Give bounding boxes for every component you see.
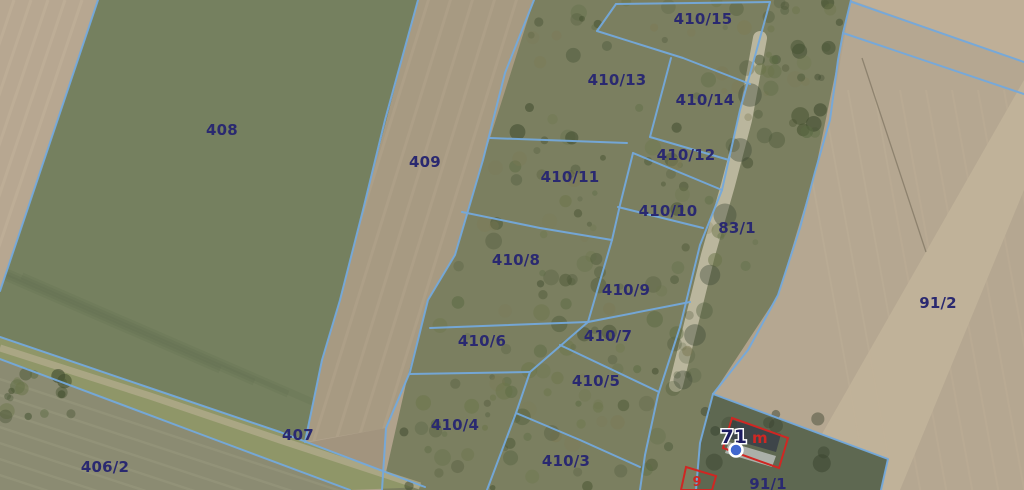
parcel-label-408: 408 bbox=[206, 121, 238, 139]
parcel-label-410-12: 410/12 bbox=[657, 146, 716, 164]
cadastral-map[interactable]: 408409410/15410/13410/14410/12410/11410/… bbox=[0, 0, 1024, 490]
parcel-label-410-13: 410/13 bbox=[588, 71, 647, 89]
parcel-label-410-15: 410/15 bbox=[674, 10, 733, 28]
parcel-label-410-14: 410/14 bbox=[676, 91, 735, 109]
parcel-label-410-11: 410/11 bbox=[541, 168, 600, 186]
parcel-label-409: 409 bbox=[409, 153, 441, 171]
map-viewport: 408409410/15410/13410/14410/12410/11410/… bbox=[0, 0, 1024, 490]
parcel-label-410-9: 410/9 bbox=[602, 281, 650, 299]
parcel-label-410-8: 410/8 bbox=[492, 251, 540, 269]
parcel-label-407: 407 bbox=[282, 426, 314, 444]
measurement-marker[interactable] bbox=[730, 444, 743, 457]
parcel-label-91-2: 91/2 bbox=[919, 294, 957, 312]
parcel-label-410-7: 410/7 bbox=[584, 327, 632, 345]
parcel-label-410-6: 410/6 bbox=[458, 332, 506, 350]
parcel-label-406-2: 406/2 bbox=[81, 458, 129, 476]
building-number-label: 9 bbox=[692, 475, 701, 490]
parcel-label-410-10: 410/10 bbox=[639, 202, 698, 220]
parcel-label-410-5: 410/5 bbox=[572, 372, 620, 390]
measurement-unit: m bbox=[752, 429, 768, 447]
parcel-label-410-4: 410/4 bbox=[431, 416, 479, 434]
parcel-label-91-1: 91/1 bbox=[749, 475, 787, 490]
parcel-label-83-1: 83/1 bbox=[718, 219, 756, 237]
parcel-label-410-3: 410/3 bbox=[542, 452, 590, 470]
